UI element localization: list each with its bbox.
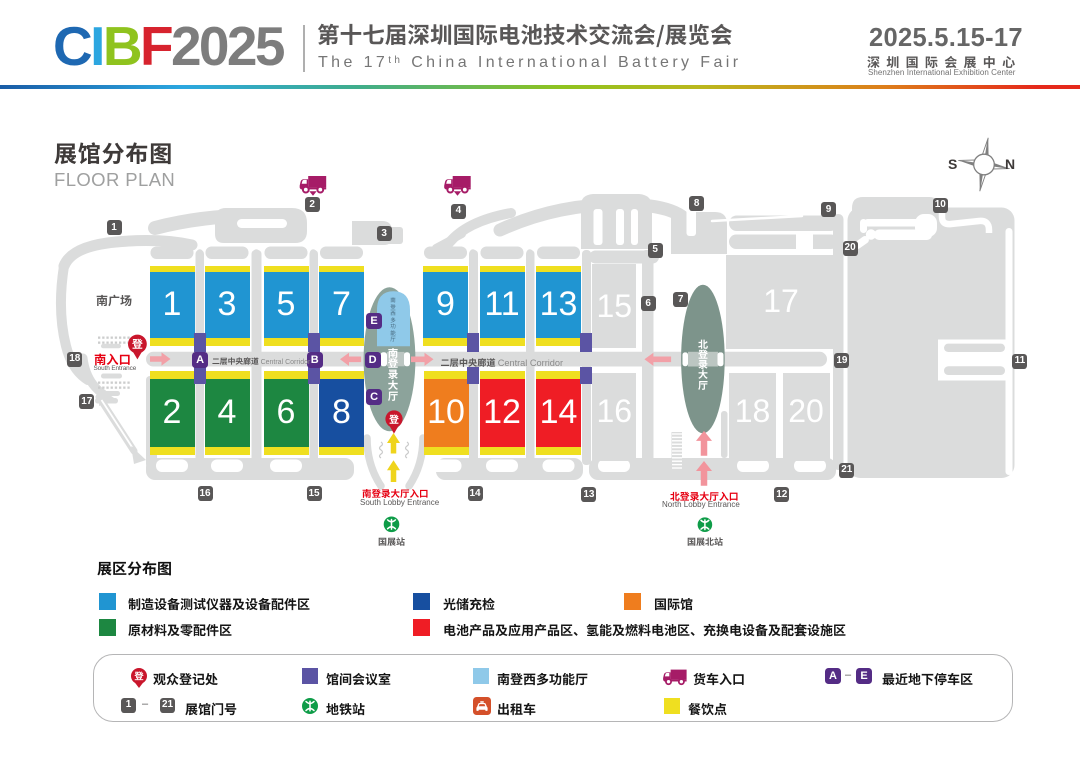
svg-text:S: S: [948, 156, 957, 172]
svg-text:登: 登: [132, 336, 143, 352]
svg-text:登: 登: [134, 668, 144, 682]
svg-text:N: N: [1005, 156, 1015, 172]
svg-text:登: 登: [389, 411, 399, 426]
